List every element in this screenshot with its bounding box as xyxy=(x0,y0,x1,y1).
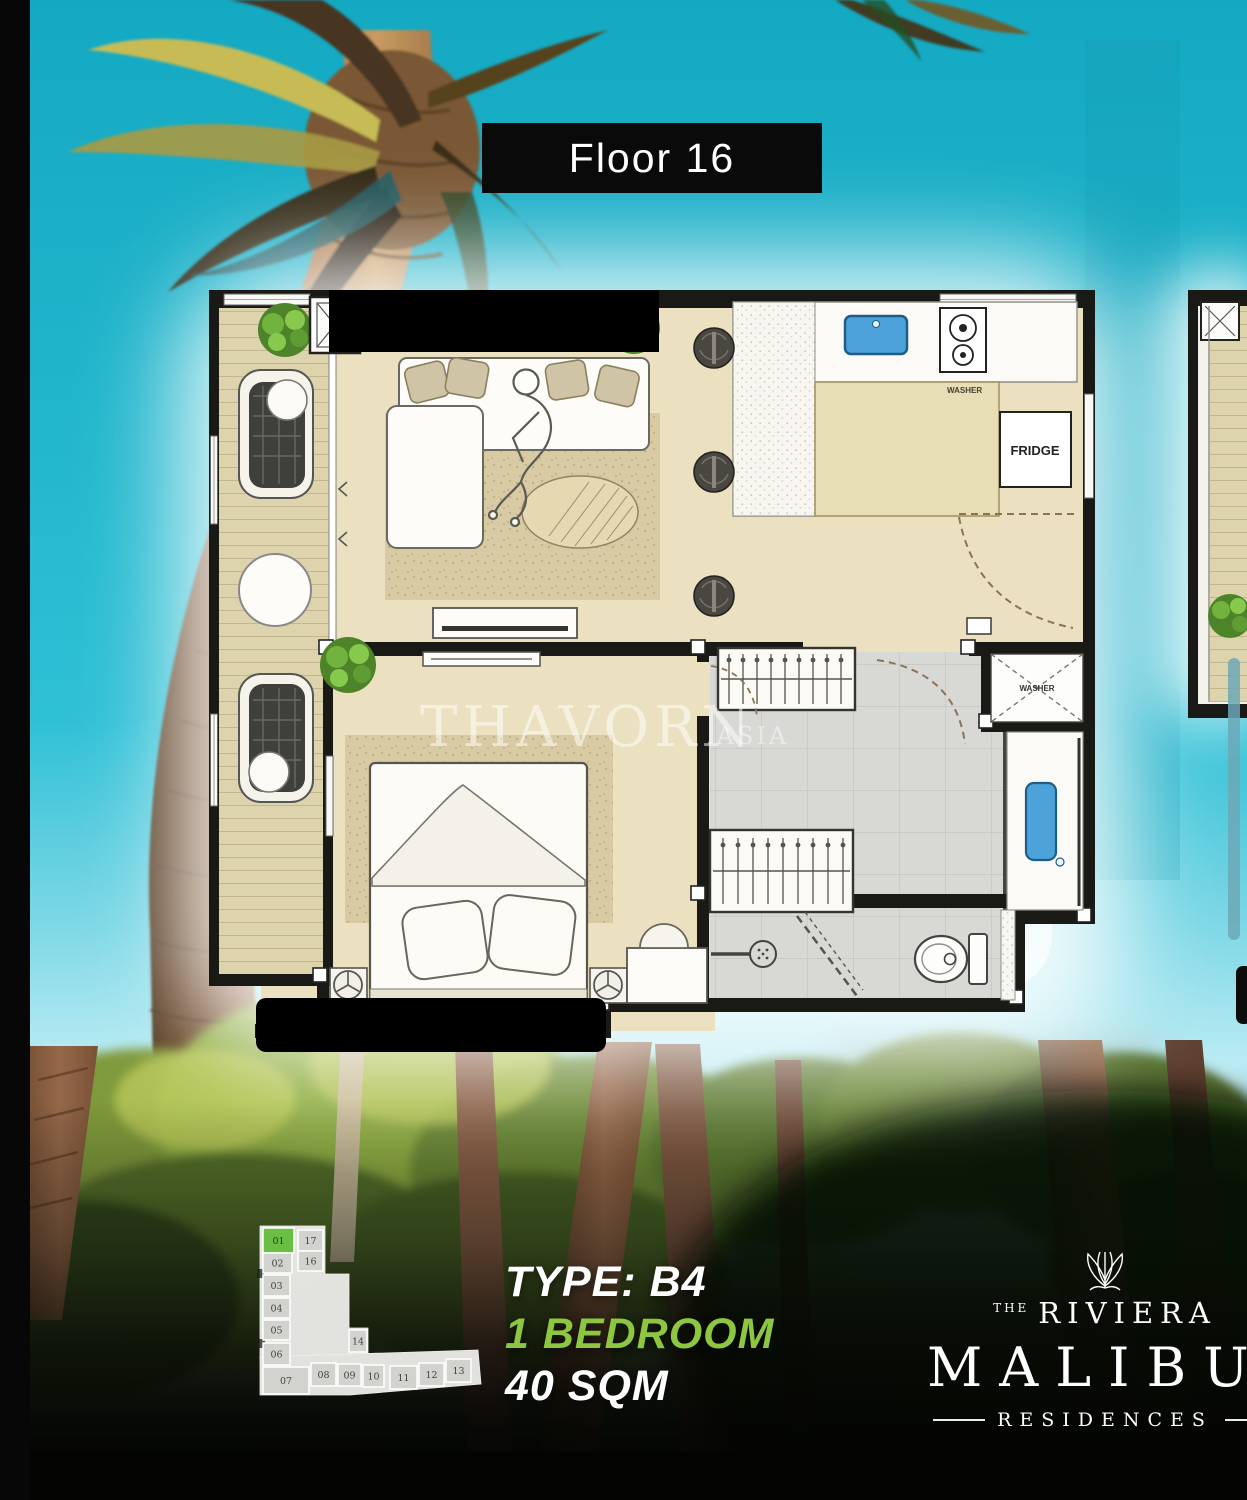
svg-text:17: 17 xyxy=(304,1236,316,1247)
rule-left xyxy=(933,1419,985,1421)
svg-text:10: 10 xyxy=(367,1372,379,1383)
sky-streak xyxy=(1085,40,1180,880)
brand-residences: RESIDENCES xyxy=(997,1409,1213,1431)
neighbor-shaft-box xyxy=(1201,302,1239,340)
unit-bedrooms: 1 BEDROOM xyxy=(505,1308,774,1360)
thavorn-watermark: THAVORN .ASIA xyxy=(420,695,789,760)
svg-text:16: 16 xyxy=(304,1257,316,1268)
svg-text:05: 05 xyxy=(270,1326,282,1337)
floor-badge: Floor 16 xyxy=(482,123,822,193)
svg-text:13: 13 xyxy=(452,1366,464,1377)
svg-text:07: 07 xyxy=(280,1376,292,1387)
flyer-page: Floor 16 xyxy=(0,0,1247,1500)
floor-plan: WASHER FRIDGE xyxy=(209,286,1095,1056)
fridge-label: FRIDGE xyxy=(1010,443,1059,458)
svg-text:06: 06 xyxy=(270,1350,282,1361)
brand-malibu: MALIBU xyxy=(927,1336,1247,1399)
bedroom-dresser xyxy=(423,652,540,666)
washer-closet: WASHER xyxy=(991,654,1083,722)
balcony-chair-bottom xyxy=(239,674,313,802)
svg-text:14: 14 xyxy=(352,1337,364,1348)
redaction-bottom xyxy=(256,998,606,1052)
balcony-table xyxy=(239,554,311,626)
neighbor-balcony-deck xyxy=(1210,306,1247,702)
tv-console xyxy=(433,608,577,638)
toilet xyxy=(915,934,987,984)
svg-text:09: 09 xyxy=(343,1371,355,1382)
svg-text:11: 11 xyxy=(397,1373,409,1384)
wardrobe-bottom xyxy=(710,830,853,912)
floor-badge-label: Floor 16 xyxy=(569,135,735,182)
unit-info: TYPE: B4 1 BEDROOM 40 SQM xyxy=(505,1256,774,1412)
residences-row: RESIDENCES xyxy=(945,1409,1247,1431)
fridge: FRIDGE xyxy=(1000,412,1071,487)
redaction-top xyxy=(329,290,659,352)
rule-right xyxy=(1225,1419,1247,1421)
balcony-chair-top xyxy=(239,370,313,498)
bottom-black-band xyxy=(0,1452,1247,1500)
palm-fronds-topright xyxy=(835,0,1030,62)
svg-text:03: 03 xyxy=(270,1281,282,1292)
svg-text:08: 08 xyxy=(317,1370,329,1381)
right-edge-dark-chip xyxy=(1236,966,1247,1024)
vertical-teal-bar xyxy=(1228,658,1240,940)
svg-text:12: 12 xyxy=(425,1370,437,1381)
unit-area: 40 SQM xyxy=(505,1360,774,1412)
oval-rug xyxy=(522,476,638,548)
keyplan: 01 02 03 04 05 06 07 08 09 10 11 12 13 1… xyxy=(252,1224,484,1406)
kitchen-counter-speckle xyxy=(733,302,815,516)
vanity-basin xyxy=(1026,783,1056,860)
counter-washer-label: WASHER xyxy=(947,386,982,395)
svg-text:01: 01 xyxy=(272,1236,284,1247)
svg-text:02: 02 xyxy=(271,1259,283,1270)
vanity xyxy=(1007,732,1083,910)
left-black-bar xyxy=(0,0,30,1500)
unit-type: TYPE: B4 xyxy=(505,1256,774,1308)
stove xyxy=(940,308,986,372)
closet-washer-label: WASHER xyxy=(1019,684,1054,693)
sink-faucet xyxy=(873,321,880,328)
mosaic-wall xyxy=(1001,910,1015,1000)
brand-the: THE xyxy=(993,1301,1029,1315)
svg-text:04: 04 xyxy=(270,1304,282,1315)
palm-ornament-icon xyxy=(945,1246,1247,1294)
bed xyxy=(370,763,587,1003)
nightstand-left xyxy=(330,968,367,1003)
svg-text:.ASIA: .ASIA xyxy=(706,722,789,750)
entry-latch xyxy=(967,618,991,634)
nightstand-right xyxy=(590,968,627,1003)
brand-logo: THE RIVIERA MALIBU RESIDENCES xyxy=(945,1246,1247,1431)
island-counter xyxy=(815,382,999,516)
balcony-plant-top xyxy=(258,303,312,357)
brand-riviera: RIVIERA xyxy=(1038,1296,1217,1330)
balcony-plant-mid xyxy=(320,637,376,693)
riviera-row: THE RIVIERA xyxy=(945,1296,1247,1330)
